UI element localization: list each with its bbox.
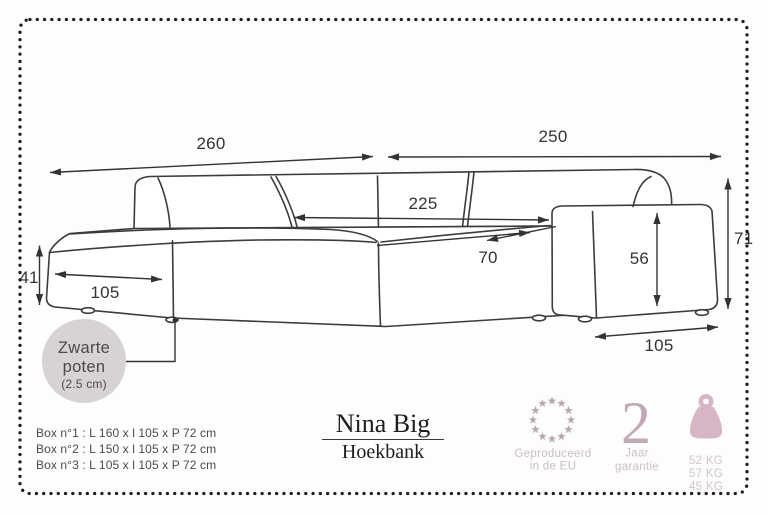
sofa-foot [579, 316, 592, 322]
dim-chaise-total-width: 260 [50, 134, 373, 173]
dim-label: 250 [539, 127, 568, 146]
dim-label: 56 [630, 249, 649, 268]
eu-label-line2: in de EU [530, 461, 577, 473]
product-name: Nina Big [336, 409, 431, 438]
sofa-chaise-seam [173, 241, 174, 318]
product-category: Hoekbank [342, 441, 424, 463]
warranty-label-line2: garantie [615, 461, 659, 473]
dim-label: 41 [19, 268, 38, 287]
warranty-badge: 2 Jaar garantie [615, 390, 659, 473]
diagram-canvas: Zwarte poten (2.5 cm) 260 250 225 70 56 [0, 0, 768, 515]
legs-note-connector [126, 321, 175, 362]
dim-armrest-depth: 105 [595, 327, 718, 355]
product-dimension-sheet: Zwarte poten (2.5 cm) 260 250 225 70 56 [0, 0, 768, 515]
warranty-number: 2 [621, 390, 651, 456]
sofa-drawing [47, 169, 718, 326]
dim-label: 105 [645, 336, 674, 355]
legs-note: Zwarte poten (2.5 cm) [42, 318, 177, 403]
dim-label: 71 [734, 229, 753, 248]
dim-label: 105 [91, 283, 120, 302]
sofa-backrest-seam [378, 176, 379, 229]
dim-label: 70 [478, 248, 497, 267]
dim-label: 225 [409, 194, 438, 213]
eu-badge: Geproduceerd in de EU [514, 397, 591, 473]
packaging-box-list: Box n°1 : L 160 x l 105 x P 72 cm Box n°… [36, 426, 216, 472]
legs-note-line2: poten [63, 358, 106, 376]
product-title-block: Nina Big Hoekbank [322, 409, 444, 463]
weight-icon [690, 396, 722, 438]
weight-value-2: 57 KG [689, 468, 723, 480]
dim-chaise-height: 41 [19, 246, 39, 306]
box-spec-3: Box n°3 : L 105 x l 105 x P 72 cm [36, 458, 216, 472]
box-spec-1: Box n°1 : L 160 x l 105 x P 72 cm [36, 426, 216, 440]
eu-stars-icon [529, 397, 576, 443]
dim-total-height: 71 [728, 179, 753, 310]
weight-value-3: 45 KG [689, 481, 723, 493]
weight-value-1: 52 KG [689, 455, 723, 467]
sofa-foot [82, 308, 95, 314]
sofa-foot [696, 310, 709, 316]
warranty-label-line1: Jaar [625, 448, 649, 460]
legs-note-line1: Zwarte [58, 339, 110, 357]
dim-label: 260 [197, 134, 226, 153]
box-spec-2: Box n°2 : L 150 x l 105 x P 72 cm [36, 442, 216, 456]
sofa-foot [533, 315, 546, 321]
legs-note-line3: (2.5 cm) [61, 377, 107, 391]
weight-badge: 52 KG 57 KG 45 KG [689, 396, 723, 493]
dim-right-total-width: 250 [388, 127, 721, 157]
legs-note-anchor-dot [173, 318, 178, 323]
eu-label-line1: Geproduceerd [514, 448, 591, 460]
